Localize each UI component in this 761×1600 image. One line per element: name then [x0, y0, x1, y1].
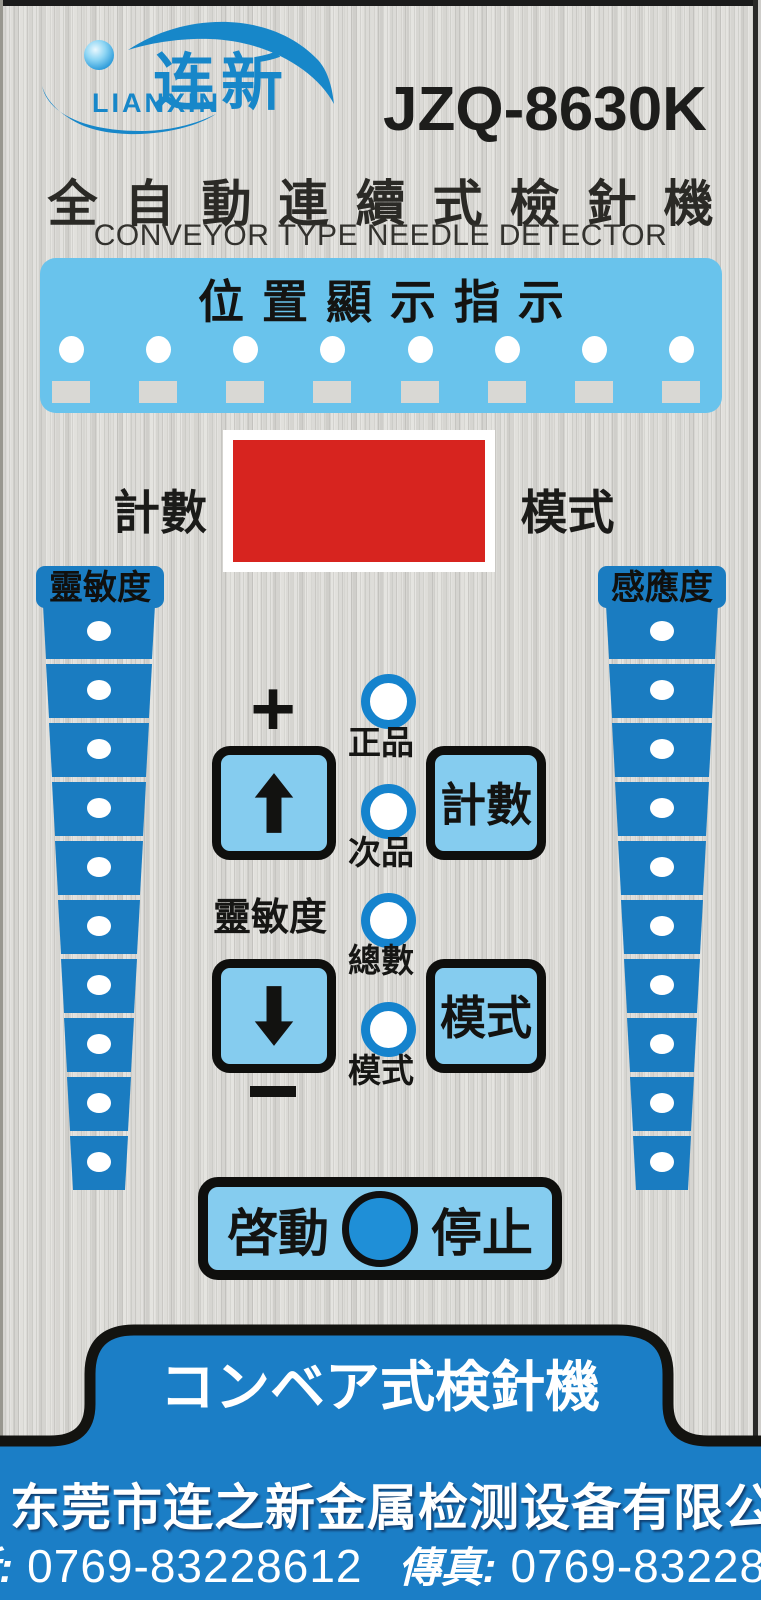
model-number: JZQ-8630K: [352, 74, 738, 145]
position-led: [408, 336, 433, 363]
display-mode-label: 模式: [505, 474, 630, 543]
brand-logo: 连新 LIANXIN: [28, 8, 358, 158]
display-red-screen: [233, 440, 485, 562]
position-indicator-square: [139, 381, 177, 403]
position-led: [59, 336, 84, 363]
position-indicator-square: [226, 381, 264, 403]
level-segment-led: [87, 739, 111, 759]
level-segment-led: [650, 1093, 674, 1113]
level-segment-led: [87, 916, 111, 936]
level-segment-led: [650, 739, 674, 759]
position-indicator-square: [575, 381, 613, 403]
level-segment-led: [87, 621, 111, 641]
good-product-led-label: 正品: [311, 716, 451, 764]
fax-number: 0769-83228650: [511, 1539, 761, 1593]
level-segment-led: [87, 798, 111, 818]
fax-label: 傳真:: [399, 1534, 497, 1595]
stop-label: 停止: [431, 1192, 533, 1266]
position-panel-title: 位置顯示指示: [40, 266, 722, 332]
level-segment-led: [87, 1152, 111, 1172]
position-led: [495, 336, 520, 363]
machine-title-english: CONVEYOR TYPE NEEDLE DETECTOR: [0, 219, 761, 253]
logo-droplet-icon: [84, 40, 114, 70]
start-label: 啓動: [227, 1192, 329, 1266]
defective-product-led-label: 次品: [311, 826, 451, 874]
position-led: [320, 336, 345, 363]
right-sensitivity-bargraph: [597, 600, 727, 1200]
frame-top-edge: [0, 0, 761, 6]
company-name: 东莞市连之新金属检测设备有限公司: [10, 1468, 751, 1540]
position-led: [669, 336, 694, 363]
position-indicator-square: [662, 381, 700, 403]
phone-label: 電話:: [0, 1534, 13, 1595]
footer-tab-title: コンベア式検針機: [130, 1342, 630, 1422]
level-segment-led: [650, 916, 674, 936]
level-segment-led: [650, 621, 674, 641]
left-sensitivity-bargraph: [34, 600, 164, 1200]
position-indicator-row: [52, 381, 700, 403]
level-segment-led: [650, 1034, 674, 1054]
needle-detector-front-panel: 连新 LIANXIN JZQ-8630K 全自動連續式檢針機 CONVEYOR …: [0, 0, 761, 1600]
phone-number: 0769-83228612: [27, 1539, 362, 1593]
position-indicator-square: [401, 381, 439, 403]
seven-segment-display-window: [223, 430, 495, 572]
position-display-panel: 位置顯示指示: [40, 258, 722, 413]
level-segment-led: [650, 1152, 674, 1172]
position-led: [146, 336, 171, 363]
level-segment-led: [87, 680, 111, 700]
position-indicator-square: [52, 381, 90, 403]
level-segment-led: [87, 1093, 111, 1113]
level-segment-led: [87, 975, 111, 995]
position-led: [582, 336, 607, 363]
minus-sign: [250, 1086, 296, 1097]
level-segment-led: [87, 1034, 111, 1054]
level-segment-led: [650, 857, 674, 877]
logo-english-name: LIANXIN: [92, 88, 221, 119]
arrow-up-icon: [252, 772, 296, 834]
contact-row: 電話: 0769-83228612 傳真: 0769-83228650: [0, 1534, 761, 1595]
start-stop-circle-icon[interactable]: [342, 1191, 418, 1267]
plus-sign: +: [240, 672, 306, 744]
start-stop-button[interactable]: 啓動 停止: [198, 1177, 562, 1280]
display-count-label: 計數: [100, 474, 220, 543]
position-indicator-square: [488, 381, 526, 403]
level-segment-led: [87, 857, 111, 877]
arrow-down-icon: [252, 985, 296, 1047]
level-segment-led: [650, 680, 674, 700]
level-segment-led: [650, 798, 674, 818]
mode-led-label: 模式: [311, 1044, 451, 1092]
position-indicator-square: [313, 381, 351, 403]
center-sensitivity-label: 靈敏度: [200, 886, 340, 941]
position-led-row: [59, 336, 694, 363]
level-segment-led: [650, 975, 674, 995]
position-led: [233, 336, 258, 363]
